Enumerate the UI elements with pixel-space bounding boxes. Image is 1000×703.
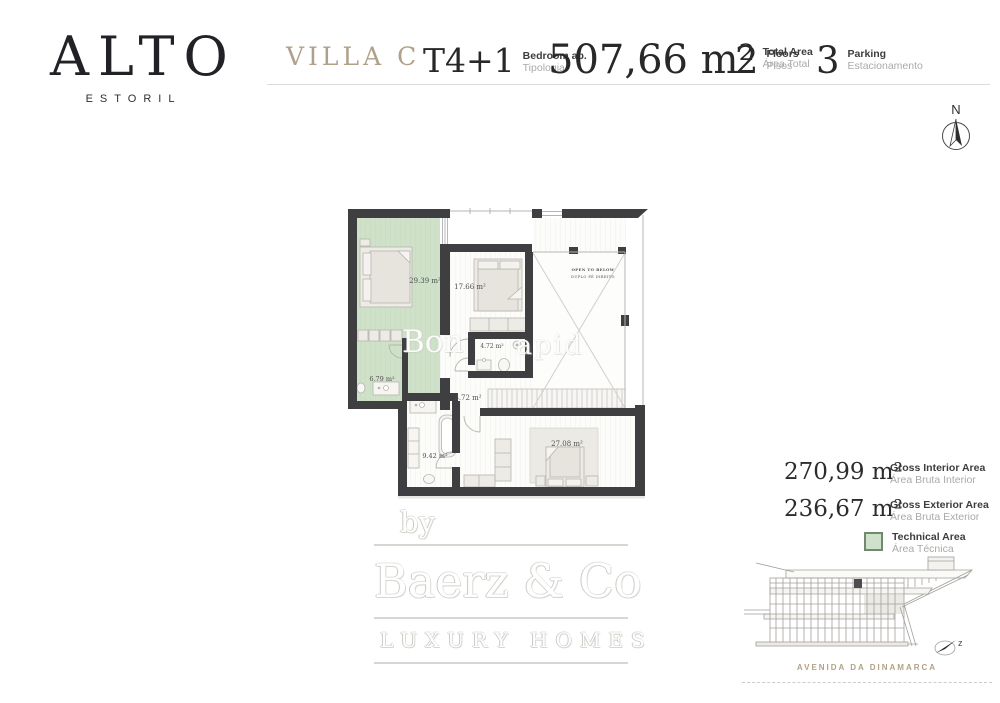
technical-area-swatch bbox=[864, 532, 883, 551]
room-label-wc: 4.72 m² bbox=[480, 343, 504, 350]
alto-logo: ALTO ESTORIL bbox=[44, 30, 218, 105]
section-z-label: z bbox=[958, 638, 963, 648]
watermark-rule bbox=[374, 662, 628, 664]
stat-parking: 3 Parking Estacionamento bbox=[816, 43, 923, 78]
header-divider bbox=[267, 84, 990, 85]
floor-plan: 29.39 m² 17.66 m² 4.72 m² 6.79 m² 3.72 m… bbox=[340, 195, 660, 510]
stat-value: 3 bbox=[816, 43, 840, 78]
stat-value: 507,66 m² bbox=[548, 41, 755, 79]
watermark-rule bbox=[374, 617, 628, 619]
watermark-tagline: LUXURY HOMES bbox=[380, 628, 628, 652]
brand-subtitle: ESTORIL bbox=[49, 93, 218, 105]
room-label-bedroom3: 27.08 m² bbox=[551, 440, 583, 448]
stat-label: Floors bbox=[767, 48, 799, 60]
stat-sublabel: Estacionamento bbox=[848, 60, 923, 72]
baerz-watermark: by Baerz & Co LUXURY HOMES bbox=[374, 505, 628, 664]
room-label-hall: 3.72 m² bbox=[454, 394, 481, 402]
area-sublabel: Área Bruta Interior bbox=[890, 474, 985, 486]
building-elevation: z bbox=[742, 552, 992, 660]
stat-sublabel: Pisos bbox=[767, 60, 799, 72]
villa-title: VILLA C bbox=[286, 42, 420, 71]
void-label-pt: DUPLO PÉ DIREITO bbox=[571, 274, 615, 279]
area-sublabel: Área Bruta Exterior bbox=[890, 511, 989, 523]
stairs bbox=[488, 389, 625, 408]
room-label-bedroom2: 17.66 m² bbox=[454, 283, 486, 291]
area-label: Gross Interior Area bbox=[890, 462, 985, 474]
brand-name: ALTO bbox=[50, 30, 218, 84]
brochure-page: ALTO ESTORIL VILLA C T4+1 Bedroom ap. Ti… bbox=[0, 0, 1000, 703]
area-label: Gross Exterior Area bbox=[890, 499, 989, 511]
area-value: 236,67 m² bbox=[784, 498, 880, 521]
gross-exterior-area: 236,67 m² Gross Exterior Area Área Bruta… bbox=[784, 498, 989, 523]
stat-value: T4+1 bbox=[423, 45, 515, 76]
street-name: AVENIDA DA DINAMARCA bbox=[742, 663, 992, 672]
stat-floors: 2 Floors Pisos bbox=[735, 43, 799, 78]
plan-watermark-fragment: apid bbox=[516, 330, 583, 361]
watermark-rule bbox=[374, 544, 628, 546]
stat-value: 2 bbox=[735, 43, 759, 78]
room-label-bath3: 9.42 m² bbox=[422, 452, 448, 460]
area-value: 270,99 m² bbox=[784, 461, 880, 484]
room-label-master: 29.39 m² bbox=[409, 277, 441, 285]
watermark-by: by bbox=[400, 505, 628, 539]
stat-label: Parking bbox=[848, 48, 923, 60]
void-label-en: OPEN TO BELOW bbox=[572, 267, 615, 272]
gross-interior-area: 270,99 m² Gross Interior Area Área Bruta… bbox=[784, 461, 985, 486]
plan-watermark-fragment: Bon bbox=[402, 324, 463, 360]
watermark-name: Baerz & Co bbox=[374, 554, 628, 608]
ground-dashed-line bbox=[742, 682, 992, 683]
room-label-bath1: 6.79 m² bbox=[369, 375, 395, 383]
legend-label: Technical Area bbox=[892, 531, 966, 543]
north-letter: N bbox=[951, 102, 960, 117]
north-compass-icon: N bbox=[936, 100, 976, 156]
